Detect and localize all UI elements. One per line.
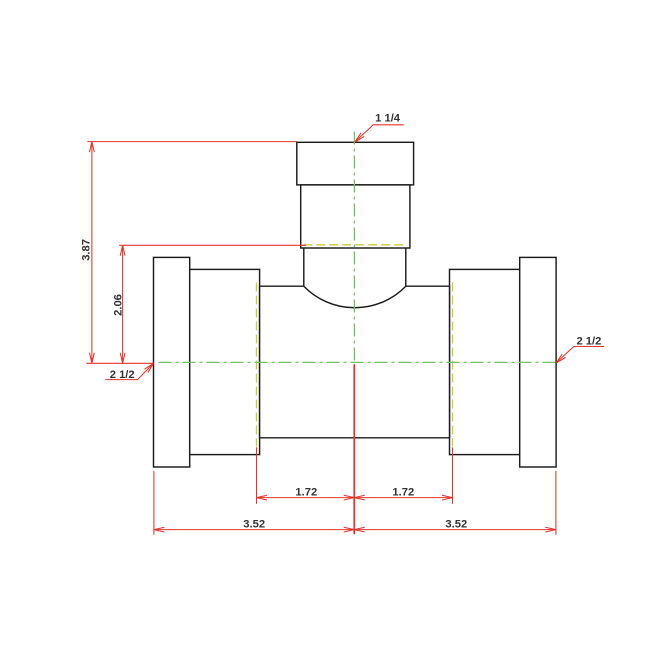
svg-text:2 1/2: 2 1/2: [576, 336, 601, 348]
svg-text:1.72: 1.72: [392, 486, 414, 498]
svg-text:2.06: 2.06: [112, 294, 124, 316]
svg-text:1 1/4: 1 1/4: [375, 113, 401, 125]
svg-text:3.52: 3.52: [445, 518, 467, 530]
svg-text:2 1/2: 2 1/2: [110, 369, 135, 381]
svg-text:1.72: 1.72: [295, 486, 317, 498]
svg-text:3.87: 3.87: [81, 239, 93, 261]
svg-text:3.52: 3.52: [243, 518, 265, 530]
